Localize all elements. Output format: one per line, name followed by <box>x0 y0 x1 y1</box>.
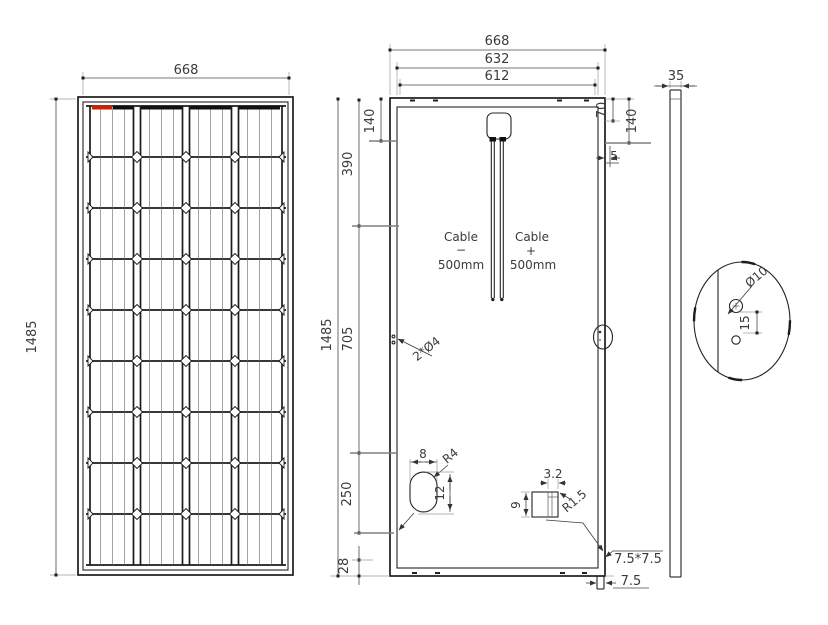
drain-width-label: 8 <box>419 447 427 461</box>
frame-holes-callout: 2*Ø4 <box>392 334 443 364</box>
corner-cut-label: 7.5*7.5 <box>614 552 662 567</box>
technical-drawing-canvas: 668 1485 668 <box>0 0 828 625</box>
cable-right-length: 500mm <box>510 258 556 272</box>
detail-hole-offset-label: 15 <box>738 315 752 330</box>
solar-cell-grid <box>86 106 286 566</box>
back-view: 668 632 612 <box>320 34 663 589</box>
corner-width-label: 7.5 <box>621 574 642 589</box>
notch-radius-label: R1.5 <box>559 487 589 515</box>
ribbon-bar <box>239 106 280 110</box>
back-right-140-label: 140 <box>625 109 640 134</box>
cable-right-word: Cable <box>515 230 549 244</box>
back-width-dimensions: 668 632 612 <box>389 34 607 87</box>
front-width-dimension: 668 <box>82 63 291 80</box>
front-height-label: 1485 <box>25 320 40 353</box>
detail-hole-diameter-label: Ø10 <box>742 264 770 291</box>
notch-height-label: 9 <box>509 501 523 509</box>
cables <box>491 141 503 301</box>
back-seg-upper-label: 390 <box>341 152 356 177</box>
cable-left-word: Cable <box>444 230 478 244</box>
cable-left-length: 500mm <box>438 258 484 272</box>
front-width-label: 668 <box>174 63 199 78</box>
solar-panel-drawing: 668 1485 668 <box>0 0 828 625</box>
front-frame-outer <box>78 97 293 575</box>
front-extension-lines <box>50 72 289 575</box>
back-right-5-label: 5 <box>610 149 618 163</box>
back-seg-lower-label: 250 <box>340 482 355 507</box>
frame-holes-note: 2*Ø4 <box>410 334 443 364</box>
side-view: 35 <box>654 69 697 577</box>
back-width-outer-label: 668 <box>485 34 510 49</box>
front-height-dimension: 1485 <box>25 98 58 577</box>
back-right-70-label: 70 <box>595 102 610 119</box>
back-seg-bottom-label: 28 <box>337 558 352 575</box>
cable-labels: Cable − 500mm Cable + 500mm <box>438 230 556 272</box>
drain-radius-label: R4 <box>440 445 461 466</box>
ground-hole <box>594 325 613 349</box>
back-seg-mid-label: 705 <box>341 327 356 352</box>
side-thickness-label: 35 <box>668 69 685 84</box>
front-frame-inner <box>83 102 288 570</box>
detail-hole-small <box>732 336 740 344</box>
notch-width-label: 3.2 <box>543 467 562 481</box>
cable-left-sign: − <box>456 243 466 257</box>
hole-detail-view: Ø10 15 <box>694 262 790 380</box>
ribbon-bar <box>141 106 182 110</box>
front-view: 668 1485 <box>25 63 293 577</box>
back-height-total-label: 1485 <box>320 318 335 351</box>
back-offset-top-label: 140 <box>363 109 378 134</box>
ribbon-bar <box>113 106 133 110</box>
notch-detail: 3.2 9 R1.5 <box>509 467 603 551</box>
ribbon-bar <box>190 106 231 110</box>
drain-height-label: 12 <box>433 485 447 500</box>
junction-box <box>487 113 511 142</box>
back-right-dimensions: 70 140 5 <box>595 98 651 168</box>
cable-right-sign: + <box>526 244 536 258</box>
back-width-mid-label: 632 <box>485 52 510 67</box>
drain-hole-detail: 8 R4 12 <box>399 445 461 530</box>
back-width-inner-label: 612 <box>485 69 510 84</box>
ribbon-red-mark <box>92 106 112 110</box>
